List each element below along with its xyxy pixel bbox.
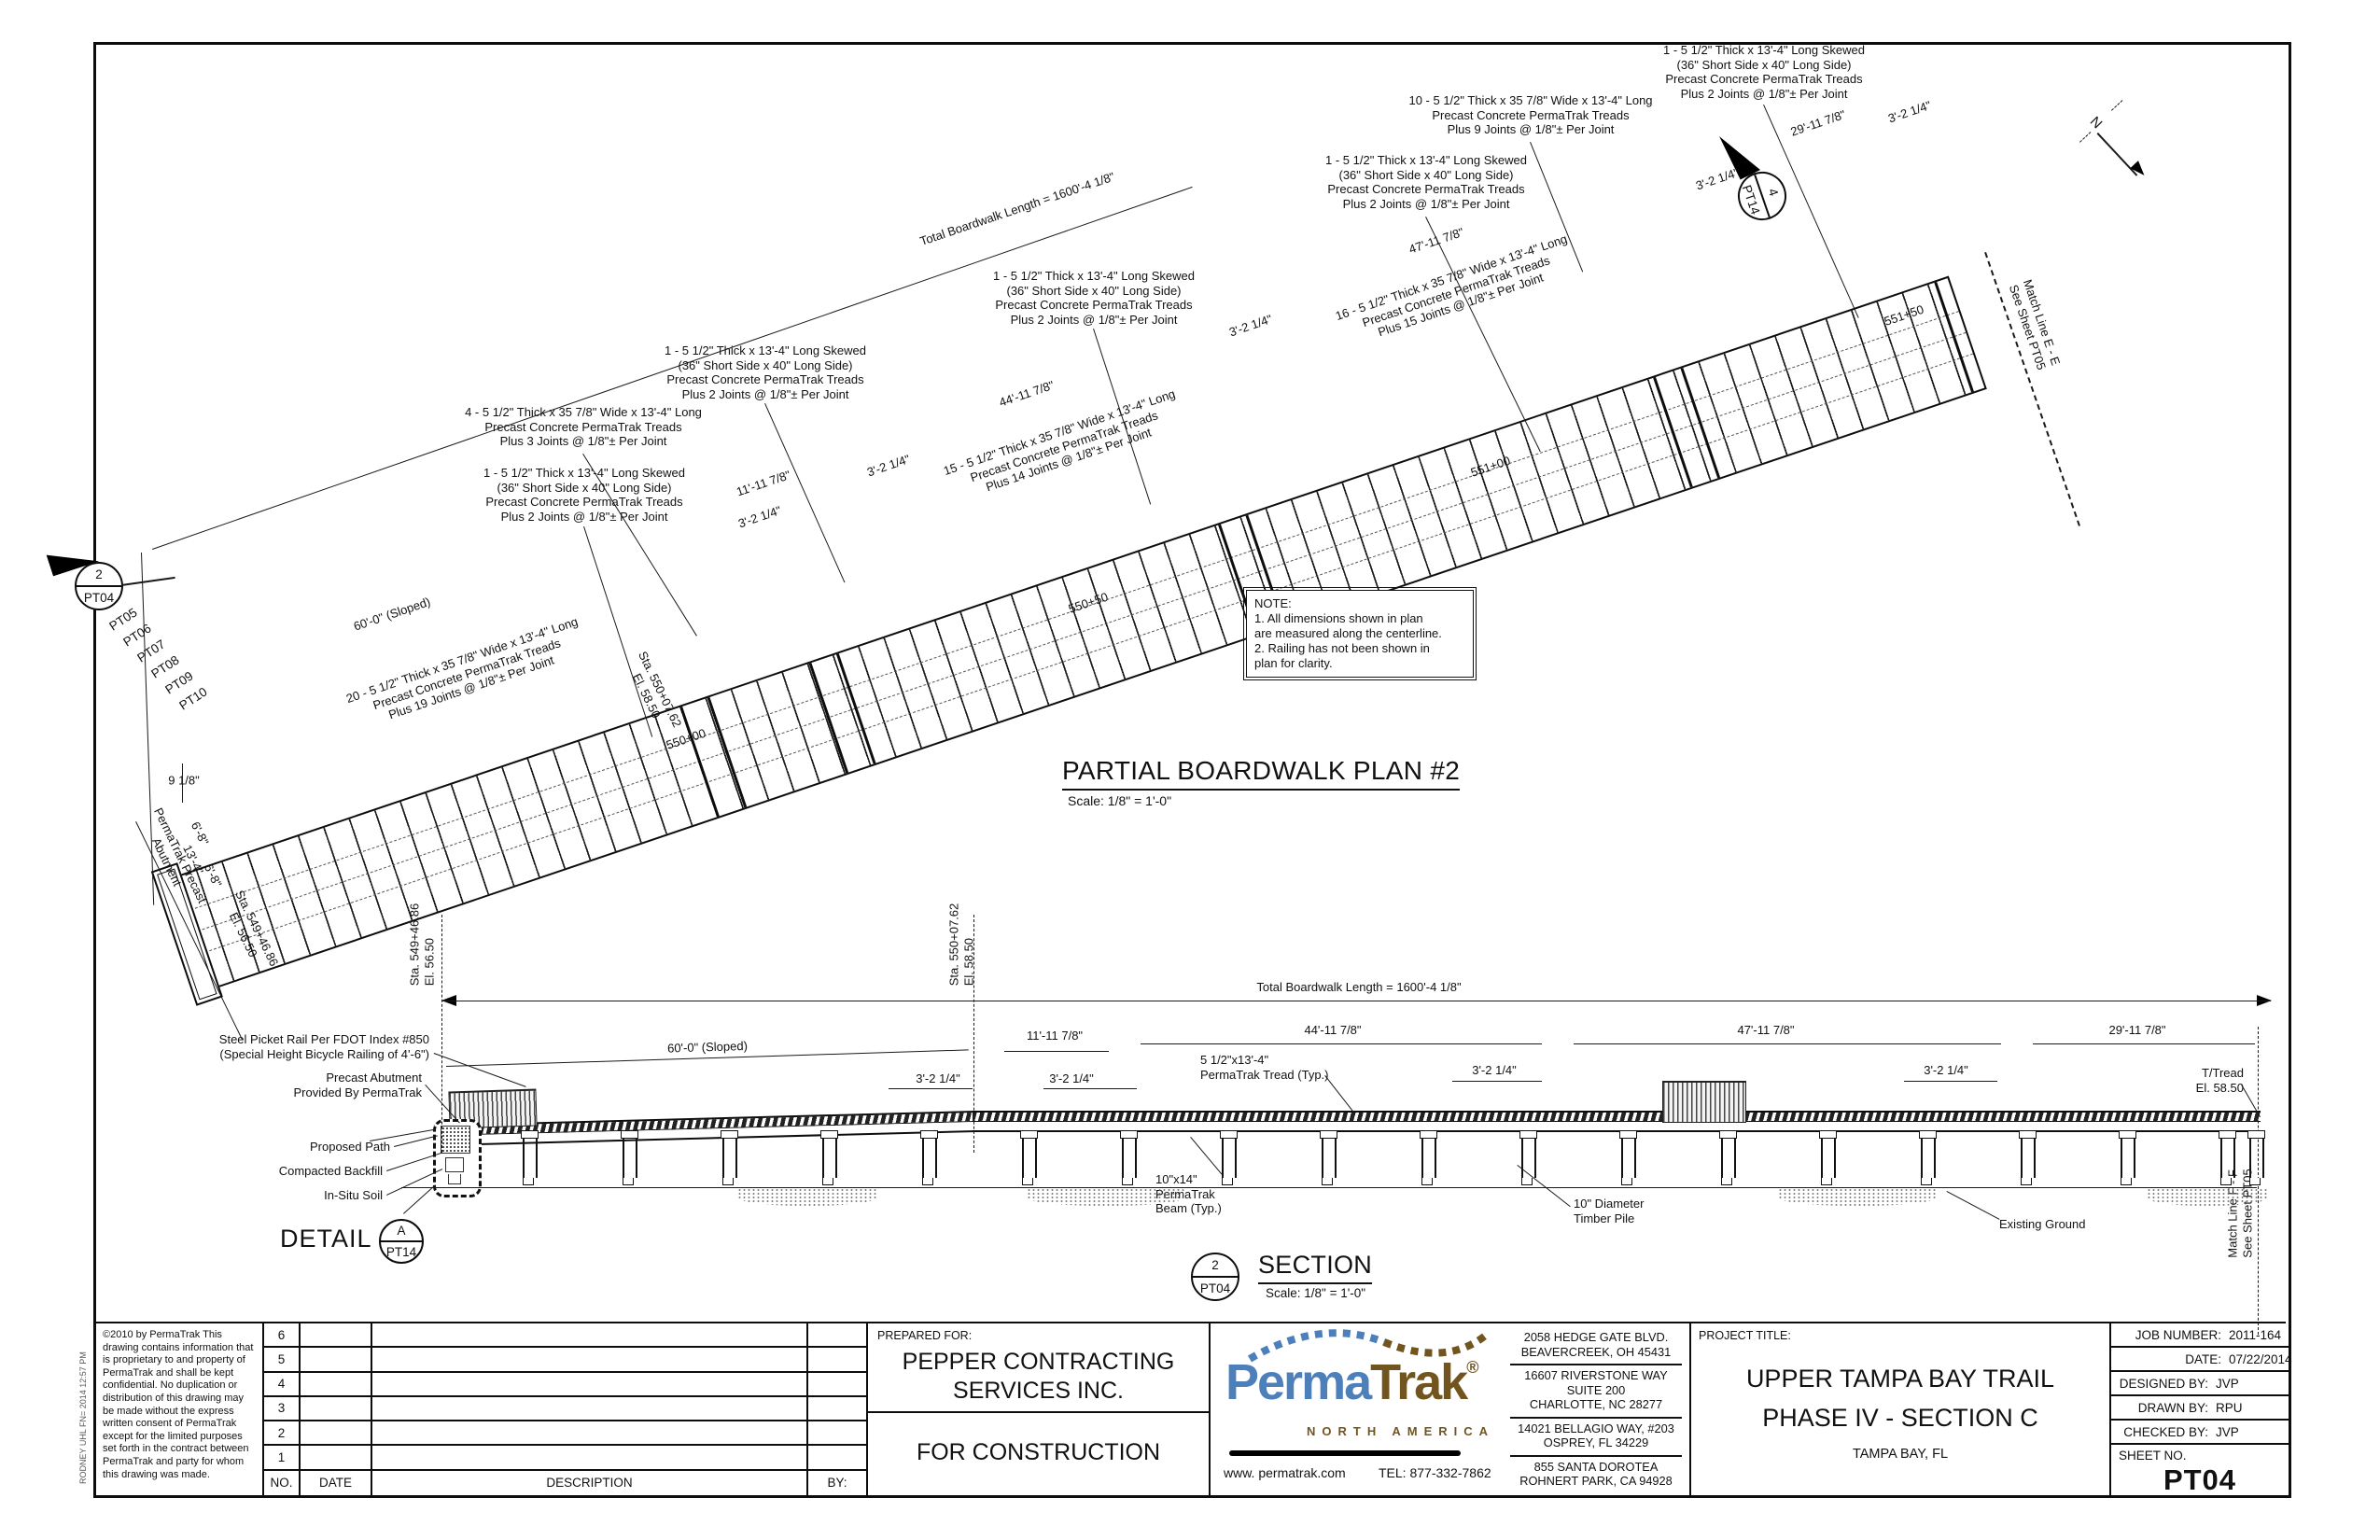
timber-pile <box>2021 1131 2036 1178</box>
project-name-line1: UPPER TAMPA BAY TRAIL <box>1691 1365 2109 1393</box>
revision-description <box>371 1373 806 1397</box>
marker-number: 2 <box>1193 1254 1238 1278</box>
revision-number: 6 <box>264 1323 299 1348</box>
section-text: 29'-11 7/8" <box>2108 1023 2165 1038</box>
revision-date <box>299 1446 371 1470</box>
logo-tagline: NORTH AMERICA <box>1307 1424 1494 1438</box>
segment-joint <box>707 697 748 807</box>
designed-by-value: JVP <box>2208 1377 2239 1391</box>
section-text: T/TreadEl. 58.50 <box>2196 1066 2244 1095</box>
revision-date <box>299 1373 371 1397</box>
section-text: Steel Picket Rail Per FDOT Index #850(Sp… <box>219 1032 429 1061</box>
note-line: are measured along the centerline. <box>1254 626 1465 641</box>
section-text: 11'-11 7/8" <box>1027 1029 1083 1043</box>
timber-pile <box>623 1131 637 1178</box>
timber-pile <box>722 1131 737 1178</box>
ground-hatch <box>2147 1188 2268 1206</box>
section-text: 3'-2 1/4" <box>1049 1071 1094 1086</box>
revision-description <box>371 1421 806 1446</box>
drawing-line <box>441 915 442 1153</box>
drawing-line <box>973 915 974 1153</box>
section-marker: 2 PT04 <box>1191 1253 1239 1301</box>
logo-wordmark: PermaTrak® <box>1225 1353 1477 1411</box>
tread-band <box>973 1111 2261 1122</box>
drawing-line <box>1904 1081 1997 1082</box>
revision-number: 2 <box>264 1421 299 1446</box>
prepared-for-panel: PREPARED FOR: PEPPER CONTRACTINGSERVICES… <box>866 1323 1209 1495</box>
project-name-line2: PHASE IV - SECTION C <box>1691 1404 2109 1433</box>
section-text: 3'-2 1/4" <box>1472 1063 1517 1078</box>
timber-pile <box>1621 1131 1636 1178</box>
revision-header-no: NO. <box>264 1471 299 1495</box>
timber-pile <box>1821 1131 1836 1178</box>
marker-sheet: PT04 <box>77 587 121 609</box>
brand-address: 16607 RIVERSTONE WAYSUITE 200CHARLOTTE, … <box>1510 1365 1682 1419</box>
logo-rule <box>1229 1450 1461 1456</box>
picket-railing <box>1662 1081 1746 1123</box>
plan-callout: 1 - 5 1/2" Thick x 13'-4" Long Skewed(36… <box>665 343 866 401</box>
client-name: PEPPER CONTRACTINGSERVICES INC. <box>868 1348 1209 1406</box>
drawing-line <box>2033 1043 2255 1044</box>
abutment-footing <box>445 1157 464 1172</box>
segment-joint <box>809 663 849 773</box>
client-line1: PEPPER CONTRACTING <box>903 1349 1175 1375</box>
timber-pile <box>1921 1131 1936 1178</box>
designed-by-label: DESIGNED BY: <box>2111 1377 2208 1391</box>
brand-address: 2058 HEDGE GATE BLVD.BEAVERCREEK, OH 454… <box>1510 1327 1682 1365</box>
plan-note-box: NOTE: 1. All dimensions shown in plan ar… <box>1246 590 1474 678</box>
timber-pile <box>1322 1131 1337 1178</box>
logo-registered-mark: ® <box>1466 1358 1477 1377</box>
drawing-line <box>889 1088 973 1089</box>
checked-by-label: CHECKED BY: <box>2111 1425 2208 1439</box>
revision-date <box>299 1323 371 1348</box>
marker-number: 2 <box>77 564 121 587</box>
section-text: Sta. 550+07.62El. 58.50 <box>947 903 976 987</box>
plan-dim-text: 9 1/8" <box>168 773 200 788</box>
timber-pile <box>1521 1131 1536 1178</box>
section-text: Existing Ground <box>1999 1217 2086 1232</box>
plot-stamp: RODNEY UHL FN= 2014 12:57 PM <box>78 1351 88 1484</box>
note-line: NOTE: <box>1254 596 1465 611</box>
plan-callout: 10 - 5 1/2" Thick x 35 7/8" Wide x 13'-4… <box>1408 93 1652 137</box>
prepared-for-label: PREPARED FOR: <box>877 1329 972 1342</box>
section-text: 5 1/2"x13'-4"PermaTrak Tread (Typ.) <box>1200 1053 1329 1082</box>
segment-joint <box>836 653 876 763</box>
timber-pile <box>2121 1131 2135 1178</box>
brand-phone: TEL: 877-332-7862 <box>1379 1465 1491 1480</box>
marker-number: A <box>381 1221 422 1242</box>
logo-word-trak: Trak <box>1370 1354 1466 1410</box>
brand-addresses: 2058 HEDGE GATE BLVD.BEAVERCREEK, OH 454… <box>1510 1323 1682 1495</box>
timber-pile <box>1721 1131 1736 1178</box>
abutment-footing <box>448 1174 461 1184</box>
revision-header-description: DESCRIPTION <box>371 1471 806 1495</box>
section-text: Proposed Path <box>310 1140 390 1155</box>
revision-description <box>371 1446 806 1470</box>
revision-header-by: BY: <box>806 1471 866 1495</box>
timber-pile <box>822 1131 837 1178</box>
section-text: 47'-11 7/8" <box>1737 1023 1794 1038</box>
section-text: Precast AbutmentProvided By PermaTrak <box>293 1071 422 1099</box>
revision-description <box>371 1323 806 1348</box>
project-title-label: PROJECT TITLE: <box>1699 1329 1791 1342</box>
project-title-panel: PROJECT TITLE: UPPER TAMPA BAY TRAIL PHA… <box>1689 1323 2109 1495</box>
revision-by <box>806 1373 866 1397</box>
drawing-line <box>401 1187 2257 1188</box>
logo-word-perma: Perma <box>1225 1354 1370 1410</box>
revision-by <box>806 1446 866 1470</box>
sheet-number-value: PT04 <box>2111 1463 2289 1497</box>
section-title: SECTION <box>1258 1251 1372 1284</box>
plan-callout: 1 - 5 1/2" Thick x 13'-4" Long Skewed(36… <box>993 269 1195 327</box>
ground-hatch <box>1778 1188 1937 1206</box>
note-line: 2. Railing has not been shown in <box>1254 641 1465 656</box>
checked-by-value: JVP <box>2208 1425 2239 1439</box>
revision-number: 5 <box>264 1348 299 1372</box>
revision-table: 654321NO.DATEDESCRIPTIONBY: <box>262 1323 866 1495</box>
detail-label: DETAIL <box>280 1225 372 1253</box>
revision-date <box>299 1421 371 1446</box>
revision-number: 3 <box>264 1397 299 1421</box>
timber-pile <box>1421 1131 1436 1178</box>
drawing-line <box>1004 1051 1109 1052</box>
copyright-note: ©2010 by PermaTrak This drawing contains… <box>96 1323 262 1495</box>
section-text: 10" DiameterTimber Pile <box>1574 1197 1644 1225</box>
ground-hatch <box>1027 1188 1185 1206</box>
beam-band <box>973 1122 2261 1132</box>
revision-by <box>806 1348 866 1372</box>
sheet-info-panel: JOB NUMBER:2011-164 DATE:07/22/2014 DESI… <box>2109 1323 2289 1495</box>
note-line: plan for clarity. <box>1254 656 1465 671</box>
date-label: DATE: <box>2111 1352 2221 1366</box>
date-value: 07/22/2014 <box>2221 1352 2292 1366</box>
plan-scale: Scale: 1/8" = 1'-0" <box>1068 793 1171 808</box>
section-text: 3'-2 1/4" <box>1924 1063 1968 1078</box>
plan-reference-marker: 2 PT04 <box>75 562 123 610</box>
section-text: 3'-2 1/4" <box>916 1071 960 1086</box>
drawing-line <box>441 1001 2271 1001</box>
plan-title: PARTIAL BOARDWALK PLAN #2 <box>1062 756 1460 791</box>
drawing-line <box>182 763 183 803</box>
sheet-number-cell: SHEET NO. PT04 <box>2111 1445 2289 1495</box>
revision-by <box>806 1421 866 1446</box>
drawing-line <box>1141 1043 1542 1044</box>
sheet-number-label: SHEET NO. <box>2119 1449 2187 1463</box>
revision-date <box>299 1348 371 1372</box>
panel-divider <box>868 1411 1209 1413</box>
permatrak-logo: PermaTrak® NORTH AMERICA www. permatrak.… <box>1218 1323 1517 1495</box>
note-line: 1. All dimensions shown in plan <box>1254 611 1465 626</box>
backfill-hatch <box>441 1126 470 1154</box>
marker-sheet: PT04 <box>1193 1278 1238 1299</box>
revision-by <box>806 1397 866 1421</box>
section-text: Total Boardwalk Length = 1600'-4 1/8" <box>1256 980 1461 995</box>
timber-pile <box>2220 1131 2235 1178</box>
client-line2: SERVICES INC. <box>953 1378 1124 1404</box>
section-text: 60'-0" (Sloped) <box>667 1039 748 1056</box>
issue-status: FOR CONSTRUCTION <box>868 1439 1209 1466</box>
plan-callout: 1 - 5 1/2" Thick x 13'-4" Long Skewed(36… <box>483 466 685 524</box>
segment-joint <box>1653 377 1693 487</box>
project-location: TAMPA BAY, FL <box>1691 1447 2109 1462</box>
revision-header-date: DATE <box>299 1471 371 1495</box>
drawing-line <box>1452 1081 1542 1082</box>
timber-pile <box>922 1131 937 1178</box>
revision-number: 4 <box>264 1373 299 1397</box>
revision-number: 1 <box>264 1446 299 1470</box>
plan-callout: 1 - 5 1/2" Thick x 13'-4" Long Skewed(36… <box>1325 153 1527 211</box>
revision-by <box>806 1323 866 1348</box>
timber-pile <box>1022 1131 1037 1178</box>
section-deck <box>973 1111 2261 1131</box>
drawing-sheet: RODNEY UHL FN= 2014 12:57 PM NOTE: 1. Al… <box>0 0 2380 1540</box>
segment-joint <box>1680 368 1720 478</box>
drawing-line <box>1043 1088 1137 1089</box>
timber-pile <box>1222 1131 1237 1178</box>
brand-website: www. permatrak.com <box>1224 1465 1346 1480</box>
detail-marker: A PT14 <box>379 1219 424 1264</box>
timber-pile <box>523 1131 538 1178</box>
section-abutment <box>433 1119 482 1197</box>
section-text: In-Situ Soil <box>324 1188 383 1203</box>
drawn-by-value: RPU <box>2208 1401 2243 1415</box>
section-text: Sta. 549+46.86El. 56.50 <box>408 903 437 987</box>
section-text: Compacted Backfill <box>279 1164 383 1179</box>
section-text: 44'-11 7/8" <box>1304 1023 1361 1038</box>
plan-callout: 1 - 5 1/2" Thick x 13'-4" Long Skewed(36… <box>1663 43 1865 101</box>
drawing-line <box>1574 1043 2001 1044</box>
segment-joint <box>679 707 720 817</box>
job-number-label: JOB NUMBER: <box>2111 1328 2221 1342</box>
job-number-value: 2011-164 <box>2221 1328 2281 1342</box>
section-scale: Scale: 1/8" = 1'-0" <box>1266 1286 1365 1300</box>
revision-date <box>299 1397 371 1421</box>
drawn-by-label: DRAWN BY: <box>2111 1401 2208 1415</box>
ground-hatch <box>737 1188 877 1206</box>
brand-address: 14021 BELLAGIO WAY, #203OSPREY, FL 34229 <box>1510 1419 1682 1457</box>
revision-description <box>371 1348 806 1372</box>
brand-address: 855 SANTA DOROTEAROHNERT PARK, CA 94928 <box>1510 1457 1682 1493</box>
timber-pile <box>1122 1131 1137 1178</box>
marker-sheet: PT14 <box>381 1242 422 1262</box>
revision-description <box>371 1397 806 1421</box>
timber-pile <box>2249 1131 2264 1178</box>
